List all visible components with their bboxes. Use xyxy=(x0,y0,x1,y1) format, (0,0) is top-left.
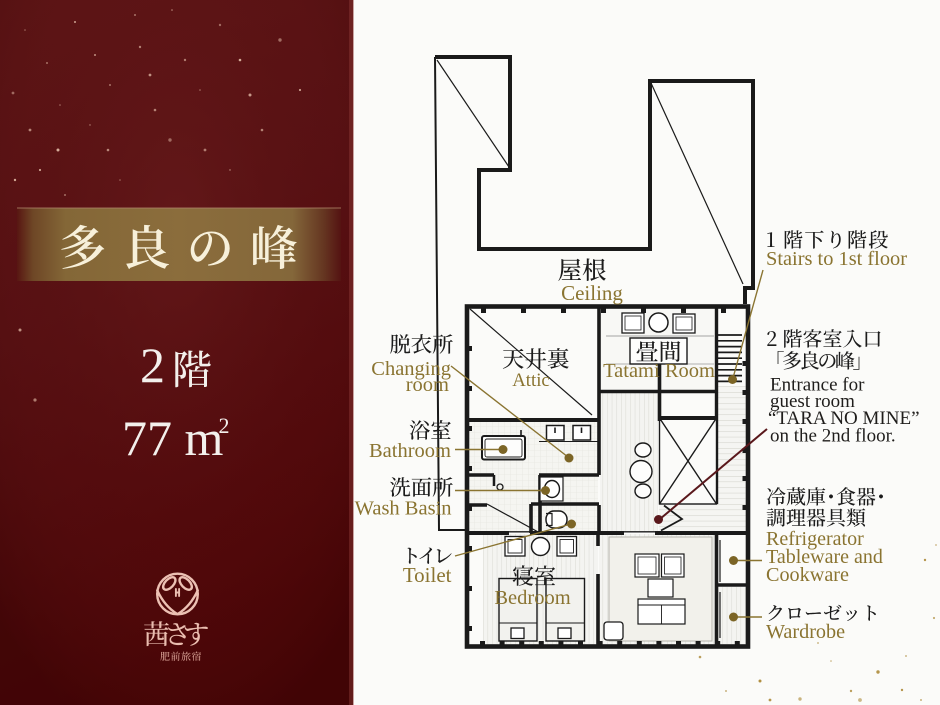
svg-text:Wash Basin: Wash Basin xyxy=(355,498,452,520)
svg-text:Toilet: Toilet xyxy=(403,563,452,587)
svg-text:Bedroom: Bedroom xyxy=(494,587,570,609)
svg-text:Attic: Attic xyxy=(512,370,550,391)
svg-text:2: 2 xyxy=(140,337,165,393)
svg-text:Tatami Room: Tatami Room xyxy=(603,360,715,382)
svg-text:room: room xyxy=(406,374,449,396)
svg-text:Stairs to 1st floor: Stairs to 1st floor xyxy=(766,248,907,270)
svg-text:Ceiling: Ceiling xyxy=(561,281,623,305)
svg-text:Wardrobe: Wardrobe xyxy=(766,621,845,643)
svg-text:Bathroom: Bathroom xyxy=(369,440,451,462)
svg-text:77 m: 77 m xyxy=(122,410,224,466)
svg-text:on the 2nd floor.: on the 2nd floor. xyxy=(770,426,896,447)
svg-text:Cookware: Cookware xyxy=(766,564,849,586)
svg-text:2: 2 xyxy=(219,413,230,438)
